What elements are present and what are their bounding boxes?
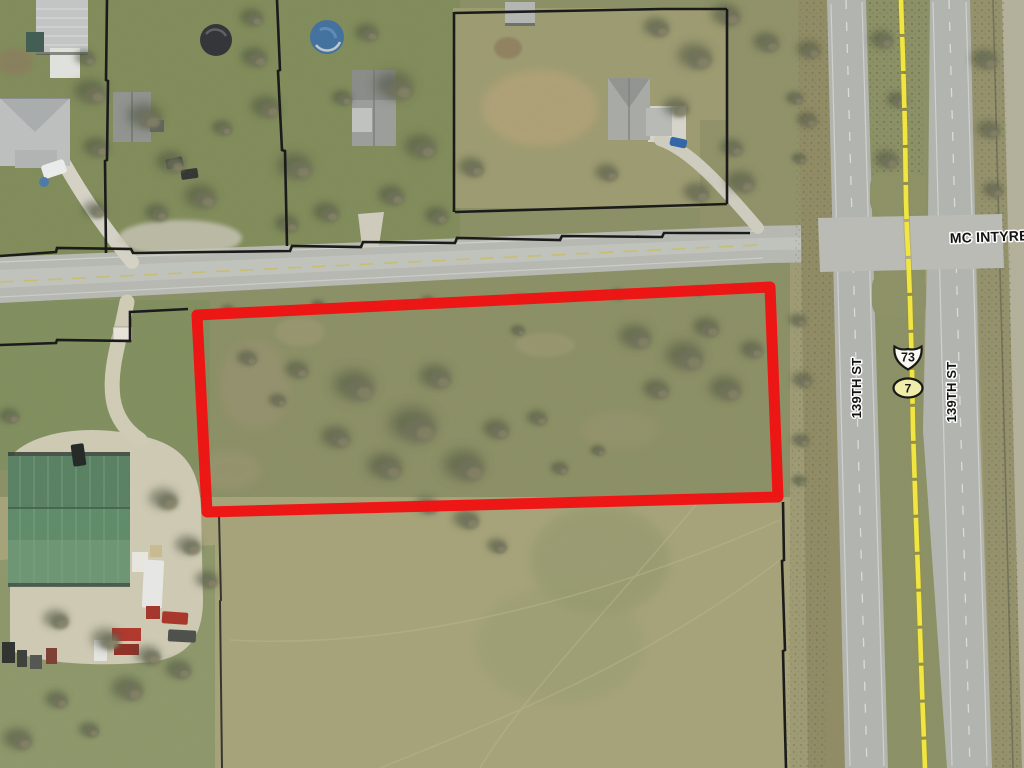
aerial-map-image: MC INTYRE 139TH ST 139TH ST 73 7 [0, 0, 1024, 768]
aerial-photo-canvas: MC INTYRE 139TH ST 139TH ST 73 7 [0, 0, 1024, 768]
photo-grain-overlay [0, 0, 1024, 768]
